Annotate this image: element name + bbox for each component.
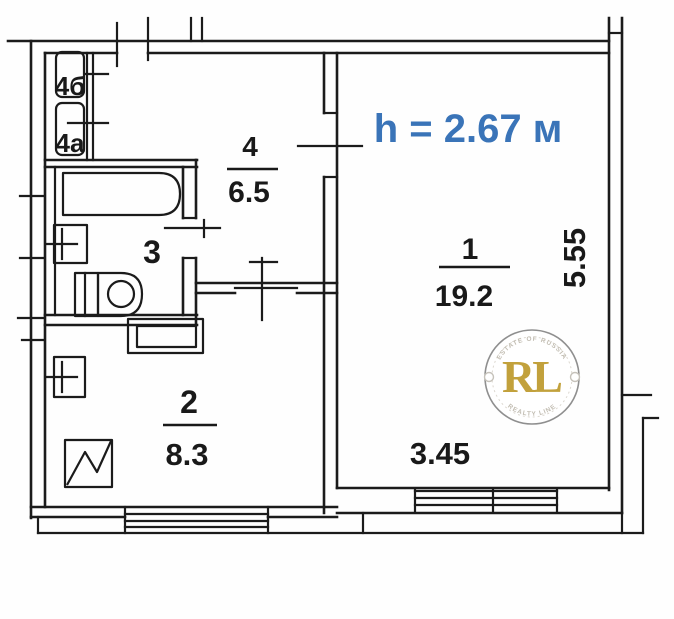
dimension-vertical: 5.55 xyxy=(557,228,592,288)
outer-walls xyxy=(8,18,651,518)
room-4-number: 4 xyxy=(242,131,258,162)
watermark-left-dot xyxy=(485,373,494,382)
window-kitchen xyxy=(31,507,337,533)
dimension-horizontal: 3.45 xyxy=(410,436,470,471)
kitchen-fixtures xyxy=(47,357,112,487)
toilet-icon xyxy=(75,273,142,316)
room-4a-label: 4а xyxy=(56,128,85,158)
room-2-area: 8.3 xyxy=(165,437,208,472)
washbasin-icon xyxy=(47,225,87,263)
stove-icon xyxy=(65,440,112,487)
kitchen-sink-icon xyxy=(47,357,85,397)
room-1-number: 1 xyxy=(462,233,479,266)
watermark-right-dot xyxy=(571,373,580,382)
balcony-outline xyxy=(38,418,658,533)
room-4-area: 6.5 xyxy=(228,176,270,209)
watermark-logo: ESTATE OF RUSSIA REALTY LINE RL xyxy=(485,330,580,424)
room-3-number: 3 xyxy=(143,234,161,270)
room-2-number: 2 xyxy=(180,384,198,420)
bathtub-icon xyxy=(63,173,180,215)
window-room-1 xyxy=(337,488,622,513)
floor-plan-svg: 4б 4а 4 6.5 3 2 8.3 1 19.2 h = 2.67 м 5.… xyxy=(0,0,674,619)
floor-plan: 4б 4а 4 6.5 3 2 8.3 1 19.2 h = 2.67 м 5.… xyxy=(0,0,674,619)
watermark-initials: RL xyxy=(502,351,561,402)
room-4b-label: 4б xyxy=(55,71,86,101)
room-1-area: 19.2 xyxy=(435,280,493,313)
ceiling-height-label: h = 2.67 м xyxy=(374,107,563,151)
